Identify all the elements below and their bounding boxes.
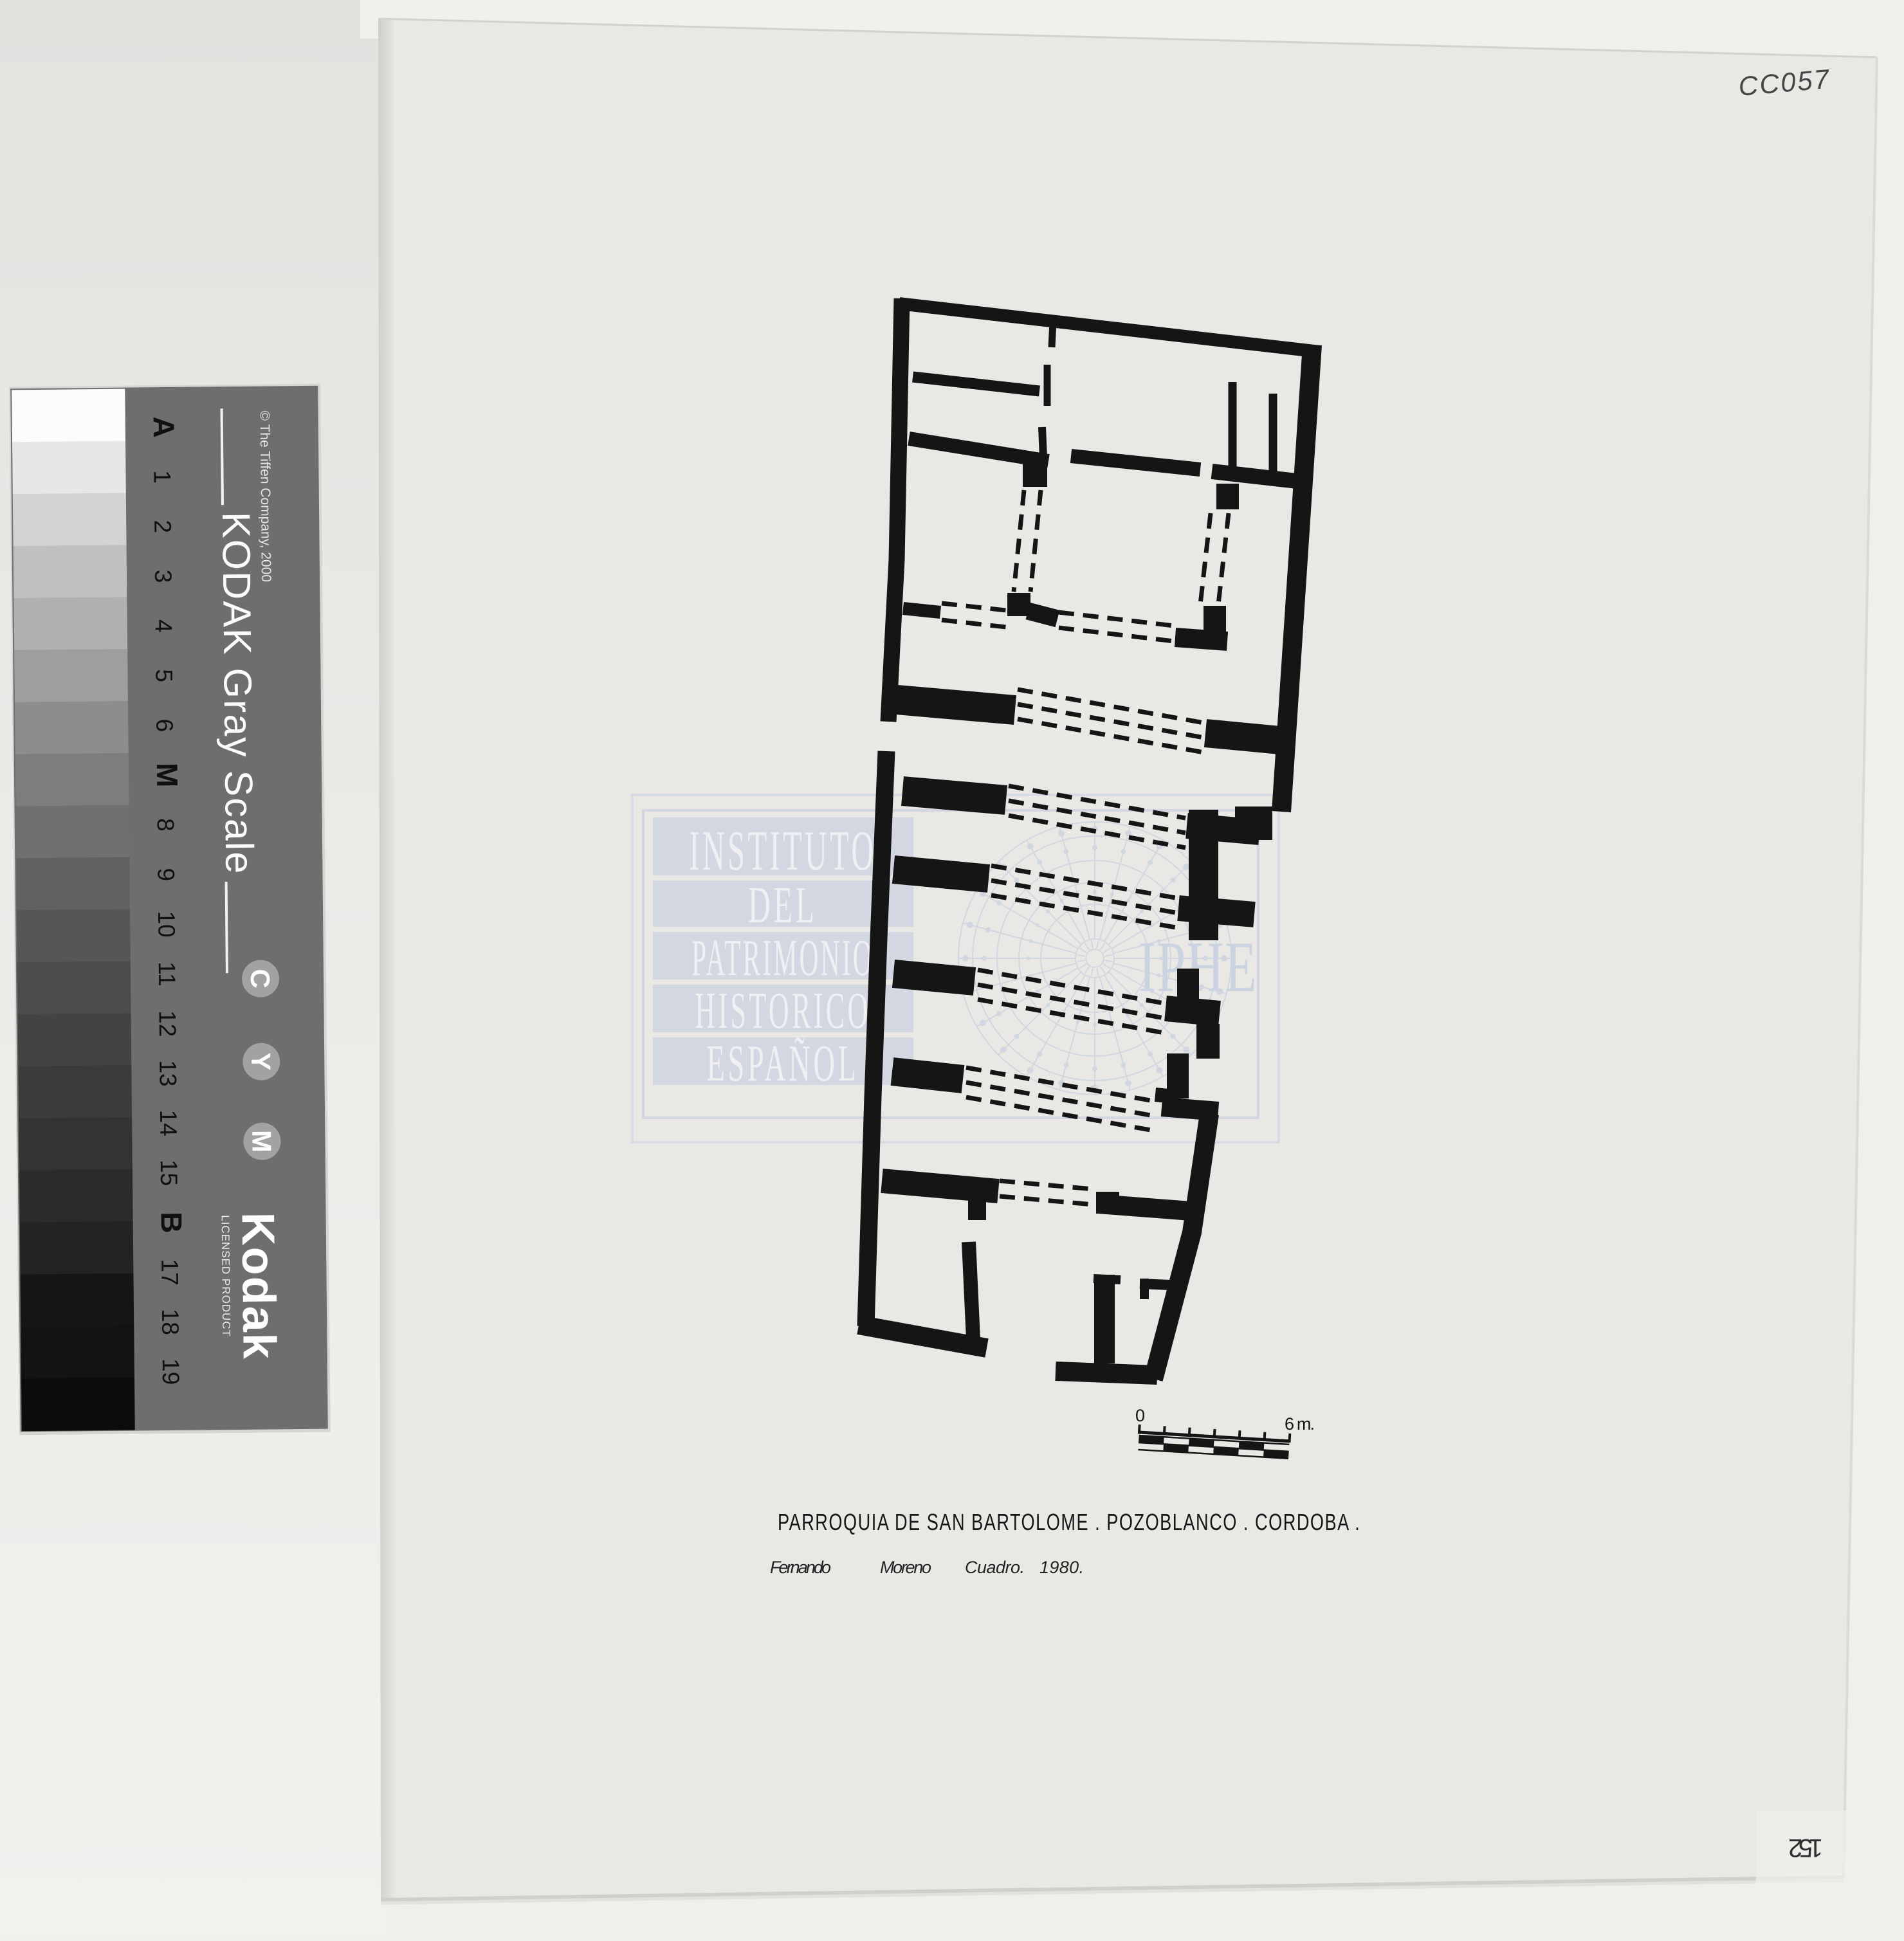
svg-text:PARROQUIA DE SAN BARTOLOME . P: PARROQUIA DE SAN BARTOLOME . POZOBLANCO …	[778, 1510, 1360, 1536]
svg-text:ESPAÑOL: ESPAÑOL	[707, 1035, 859, 1092]
svg-text:KODAK Gray Scale: KODAK Gray Scale	[214, 512, 261, 875]
svg-text:0: 0	[1135, 1406, 1145, 1425]
svg-text:Cuadro.: Cuadro.	[965, 1558, 1025, 1577]
svg-text:17: 17	[156, 1259, 183, 1286]
svg-text:12: 12	[154, 1010, 181, 1037]
svg-text:Kodak: Kodak	[232, 1212, 285, 1360]
svg-text:M: M	[246, 1130, 277, 1153]
svg-text:13: 13	[154, 1060, 181, 1087]
svg-text:LICENSED PRODUCT: LICENSED PRODUCT	[219, 1215, 233, 1337]
svg-text:Fernando: Fernando	[770, 1558, 831, 1577]
svg-text:19: 19	[158, 1358, 184, 1385]
svg-text:15: 15	[156, 1160, 182, 1187]
svg-text:6 m.: 6 m.	[1285, 1414, 1315, 1434]
svg-text:14: 14	[155, 1109, 181, 1136]
svg-text:6: 6	[151, 718, 178, 732]
svg-text:11: 11	[154, 961, 180, 987]
svg-text:1980.: 1980.	[1039, 1558, 1084, 1577]
svg-text:B: B	[155, 1212, 188, 1234]
svg-text:Y: Y	[246, 1052, 276, 1070]
svg-text:DEL: DEL	[748, 877, 818, 934]
svg-text:C: C	[245, 969, 275, 989]
svg-text:9: 9	[152, 868, 179, 881]
svg-text:A: A	[147, 416, 181, 438]
svg-text:18: 18	[157, 1309, 183, 1336]
svg-text:4: 4	[151, 619, 177, 633]
svg-text:2: 2	[149, 520, 176, 533]
svg-text:5: 5	[151, 669, 177, 682]
svg-text:INSTITUTO: INSTITUTO	[689, 820, 876, 882]
svg-text:HISTORICO: HISTORICO	[695, 981, 870, 1039]
svg-text:Moreno: Moreno	[880, 1558, 931, 1577]
svg-text:10: 10	[153, 911, 179, 938]
svg-text:8: 8	[152, 818, 179, 832]
svg-text:© The Tiffen Company, 2000: © The Tiffen Company, 2000	[257, 410, 274, 582]
svg-text:1: 1	[149, 470, 175, 484]
svg-text:3: 3	[150, 569, 176, 583]
svg-text:152: 152	[1787, 1834, 1823, 1862]
svg-text:M: M	[151, 763, 184, 788]
svg-text:PATRIMONIO: PATRIMONIO	[691, 929, 874, 986]
